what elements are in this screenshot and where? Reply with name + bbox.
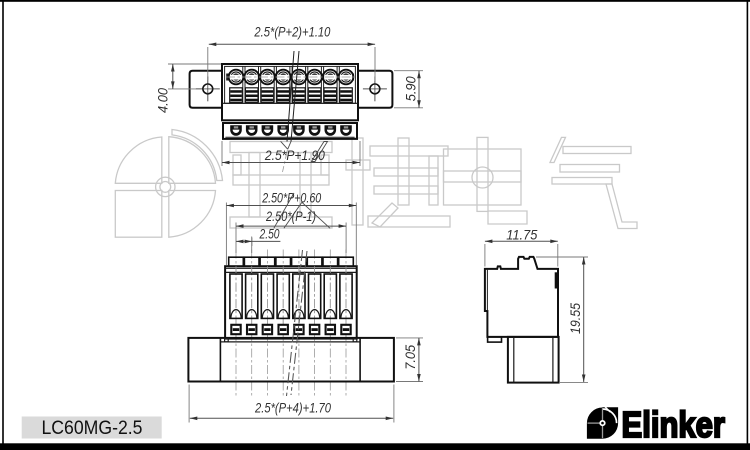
svg-text:11.75: 11.75 xyxy=(506,228,537,243)
svg-text:LC60MG-2.5: LC60MG-2.5 xyxy=(42,418,143,439)
svg-text:7.05: 7.05 xyxy=(403,344,418,369)
svg-text:2.5*(P+2)+1.10: 2.5*(P+2)+1.10 xyxy=(254,25,331,40)
svg-text:5.90: 5.90 xyxy=(403,76,418,101)
svg-text:4.00: 4.00 xyxy=(156,88,171,113)
svg-text:2.50*(P-1): 2.50*(P-1) xyxy=(265,209,316,224)
svg-text:2.5*P+1.90: 2.5*P+1.90 xyxy=(264,148,325,163)
svg-text:19.55: 19.55 xyxy=(568,303,583,334)
svg-text:2.5*(P+4)+1.70: 2.5*(P+4)+1.70 xyxy=(254,401,331,416)
svg-text:2.50: 2.50 xyxy=(259,226,280,241)
svg-text:Elinker: Elinker xyxy=(622,404,726,445)
svg-text:2.50*P+0.60: 2.50*P+0.60 xyxy=(261,191,321,206)
